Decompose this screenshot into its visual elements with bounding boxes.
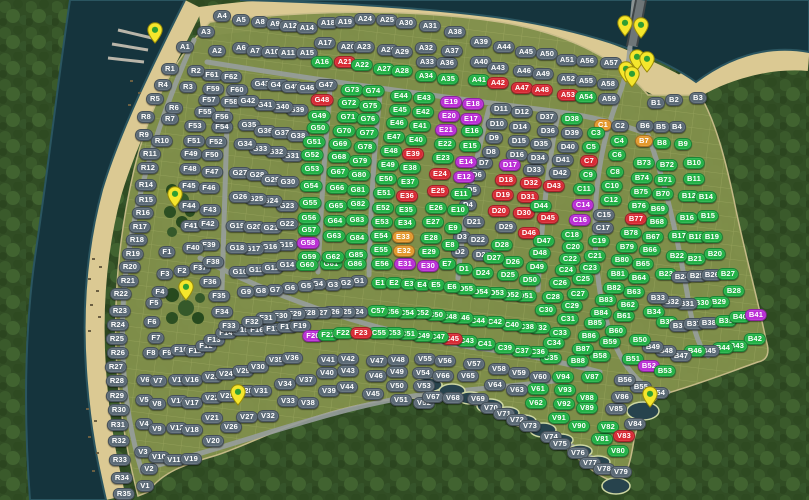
lot-label-C28[interactable]: C28: [542, 291, 564, 303]
lot-label-R21[interactable]: R21: [117, 275, 139, 287]
lot-label-A55[interactable]: A55: [575, 75, 597, 87]
lot-label-E18[interactable]: E18: [462, 98, 484, 110]
lot-label-C5[interactable]: C5: [582, 141, 600, 153]
lot-label-E20[interactable]: E20: [438, 110, 460, 122]
lot-label-C21[interactable]: C21: [584, 250, 606, 262]
lot-label-E50[interactable]: E50: [375, 173, 397, 185]
lot-label-B76[interactable]: B76: [628, 200, 650, 212]
lot-label-R7[interactable]: R7: [161, 113, 179, 125]
lot-label-A47[interactable]: A47: [511, 82, 533, 94]
lot-label-V50[interactable]: V50: [386, 380, 408, 392]
lot-label-D37[interactable]: D37: [536, 111, 558, 123]
lot-label-B60[interactable]: B60: [605, 325, 627, 337]
lot-label-C9[interactable]: C9: [579, 169, 597, 181]
lot-label-B62[interactable]: B62: [617, 299, 639, 311]
lot-label-C19[interactable]: C19: [588, 235, 610, 247]
lot-label-E26[interactable]: E26: [425, 202, 447, 214]
lot-label-R11[interactable]: R11: [139, 148, 161, 160]
lot-label-B72[interactable]: B72: [656, 159, 678, 171]
lot-label-V42[interactable]: V42: [337, 353, 359, 365]
lot-label-V63[interactable]: V63: [506, 384, 528, 396]
lot-label-A24[interactable]: A24: [354, 13, 376, 25]
lot-label-E19[interactable]: E19: [440, 96, 462, 108]
lot-label-A59[interactable]: A59: [598, 93, 620, 105]
lot-label-F35[interactable]: F35: [208, 290, 230, 302]
lot-label-G62[interactable]: G62: [322, 251, 345, 263]
lot-label-V61[interactable]: V61: [527, 383, 549, 395]
lot-label-D35[interactable]: D35: [530, 138, 552, 150]
lot-label-G55[interactable]: G55: [299, 197, 322, 209]
lot-label-A34[interactable]: A34: [415, 70, 437, 82]
lot-label-G30[interactable]: G30: [277, 176, 300, 188]
lot-label-R33[interactable]: R33: [109, 454, 131, 466]
lot-label-A42[interactable]: A42: [487, 77, 509, 89]
lot-label-B6[interactable]: B6: [636, 120, 654, 132]
lot-label-R18[interactable]: R18: [126, 234, 148, 246]
lot-label-E53[interactable]: E53: [371, 216, 393, 228]
lot-label-D25[interactable]: D25: [497, 269, 519, 281]
lot-label-V81[interactable]: V81: [591, 433, 613, 445]
lot-label-G72[interactable]: G72: [338, 97, 361, 109]
lot-label-E56[interactable]: E56: [371, 258, 393, 270]
lot-label-V55[interactable]: V55: [414, 353, 436, 365]
lot-label-F5[interactable]: F5: [145, 297, 162, 309]
lot-label-F36[interactable]: F36: [199, 276, 221, 288]
lot-label-C14[interactable]: C14: [572, 199, 594, 211]
lot-label-V17[interactable]: V17: [181, 397, 203, 409]
lot-label-R23[interactable]: R23: [109, 305, 131, 317]
lot-label-D36[interactable]: D36: [537, 125, 559, 137]
lot-label-G84[interactable]: G84: [346, 232, 369, 244]
lot-label-V58[interactable]: V58: [488, 363, 510, 375]
lot-label-F50[interactable]: F50: [201, 149, 223, 161]
lot-label-E54[interactable]: E54: [370, 230, 392, 242]
lot-label-D17[interactable]: D17: [499, 159, 521, 171]
lot-label-B50[interactable]: B50: [629, 334, 651, 346]
lot-label-E7[interactable]: E7: [438, 258, 456, 270]
lot-label-A56[interactable]: A56: [576, 55, 598, 67]
lot-label-B69[interactable]: B69: [647, 203, 669, 215]
lot-label-D27[interactable]: D27: [483, 252, 505, 264]
lot-label-A33[interactable]: A33: [416, 56, 438, 68]
lot-label-R20[interactable]: R20: [119, 261, 141, 273]
lot-label-E55[interactable]: E55: [370, 244, 392, 256]
lot-label-B61[interactable]: B61: [613, 310, 635, 322]
lot-label-B85[interactable]: B85: [584, 317, 606, 329]
lot-label-G42[interactable]: G42: [237, 95, 260, 107]
lot-label-V85[interactable]: V85: [605, 403, 627, 415]
lot-label-G70[interactable]: G70: [333, 125, 356, 137]
lot-label-V57[interactable]: V57: [463, 358, 485, 370]
lot-label-A36[interactable]: A36: [436, 57, 458, 69]
lot-label-E33[interactable]: E33: [392, 231, 414, 243]
lot-label-V31[interactable]: V31: [250, 385, 272, 397]
lot-label-G68[interactable]: G68: [328, 151, 351, 163]
lot-label-G52[interactable]: G52: [301, 149, 324, 161]
lot-label-D50[interactable]: D50: [519, 274, 541, 286]
lot-label-V92[interactable]: V92: [553, 398, 575, 410]
lot-label-B10[interactable]: B10: [683, 157, 705, 169]
lot-label-D48[interactable]: D48: [529, 247, 551, 259]
lot-label-E30[interactable]: E30: [417, 260, 439, 272]
lot-label-G69[interactable]: G69: [329, 138, 352, 150]
lot-label-D14[interactable]: D14: [509, 121, 531, 133]
lot-label-V43[interactable]: V43: [337, 365, 359, 377]
lot-label-E12[interactable]: E12: [453, 171, 475, 183]
lot-label-G74[interactable]: G74: [362, 85, 385, 97]
lot-label-V1[interactable]: V1: [136, 480, 154, 492]
lot-label-G65[interactable]: G65: [325, 200, 348, 212]
lot-label-D41[interactable]: D41: [552, 154, 574, 166]
lot-label-G66[interactable]: G66: [326, 182, 349, 194]
lot-label-V9[interactable]: V9: [148, 423, 166, 435]
lot-label-R3[interactable]: R3: [179, 81, 197, 93]
lot-label-D21[interactable]: D21: [463, 216, 485, 228]
lot-label-C3[interactable]: C3: [587, 127, 605, 139]
lot-label-B75[interactable]: B75: [630, 186, 652, 198]
lot-label-B65[interactable]: B65: [632, 258, 654, 270]
lot-label-B15[interactable]: B15: [697, 210, 719, 222]
lot-label-D47[interactable]: D47: [533, 235, 555, 247]
lot-label-D42[interactable]: D42: [549, 167, 571, 179]
lot-label-F57[interactable]: F57: [198, 94, 220, 106]
lot-label-A39[interactable]: A39: [470, 36, 492, 48]
lot-label-B79[interactable]: B79: [616, 241, 638, 253]
lot-label-B2[interactable]: B2: [665, 94, 683, 106]
lot-label-V64[interactable]: V64: [484, 379, 506, 391]
lot-label-V48[interactable]: V48: [387, 354, 409, 366]
lot-label-B78[interactable]: B78: [620, 227, 642, 239]
lot-label-D12[interactable]: D12: [511, 106, 533, 118]
lot-label-G81[interactable]: G81: [347, 184, 370, 196]
lot-label-D39[interactable]: D39: [561, 127, 583, 139]
lot-label-G63[interactable]: G63: [323, 230, 346, 242]
lot-label-E14[interactable]: E14: [455, 156, 477, 168]
lot-label-F52[interactable]: F52: [205, 136, 227, 148]
lot-label-B41[interactable]: B41: [745, 309, 767, 321]
lot-label-B22[interactable]: B22: [666, 250, 688, 262]
lot-label-D34[interactable]: D34: [527, 152, 549, 164]
lot-label-D9[interactable]: D9: [485, 132, 503, 144]
lot-label-E51[interactable]: E51: [373, 187, 395, 199]
map-pin-3[interactable]: [633, 17, 649, 39]
lot-label-E32[interactable]: E32: [393, 245, 415, 257]
lot-label-V18[interactable]: V18: [181, 424, 203, 436]
lot-label-V21[interactable]: V21: [201, 412, 223, 424]
lot-label-A38[interactable]: A38: [444, 26, 466, 38]
lot-label-V54[interactable]: V54: [412, 367, 434, 379]
lot-label-E25[interactable]: E25: [427, 185, 449, 197]
lot-label-E39[interactable]: E39: [402, 148, 424, 160]
lot-label-E42[interactable]: E42: [412, 106, 434, 118]
lot-label-D19[interactable]: D19: [492, 189, 514, 201]
lot-label-B16[interactable]: B16: [676, 212, 698, 224]
lot-label-R25[interactable]: R25: [106, 333, 128, 345]
lot-label-F62[interactable]: F62: [220, 71, 242, 83]
lot-label-B8[interactable]: B8: [653, 137, 671, 149]
lot-label-B77[interactable]: B77: [625, 213, 647, 225]
lot-label-F32[interactable]: F32: [241, 316, 263, 328]
lot-label-D38[interactable]: D38: [561, 113, 583, 125]
lot-label-G57[interactable]: G57: [298, 224, 321, 236]
lot-label-F38[interactable]: F38: [202, 256, 224, 268]
lot-label-B33[interactable]: B33: [647, 292, 669, 304]
lot-label-B86[interactable]: B86: [578, 330, 600, 342]
lot-label-R2[interactable]: R2: [187, 65, 205, 77]
lot-label-D8[interactable]: D8: [482, 146, 500, 158]
lot-label-F40[interactable]: F40: [182, 242, 204, 254]
lot-label-G86[interactable]: G86: [344, 258, 367, 270]
lot-label-B83[interactable]: B83: [595, 294, 617, 306]
lot-label-B68[interactable]: B68: [646, 216, 668, 228]
lot-label-R34[interactable]: R34: [111, 472, 133, 484]
lot-label-G58[interactable]: G58: [297, 237, 320, 249]
lot-label-R16[interactable]: R16: [132, 207, 154, 219]
lot-label-E27[interactable]: E27: [422, 216, 444, 228]
lot-label-C6[interactable]: C6: [608, 149, 626, 161]
lot-label-F46[interactable]: F46: [198, 182, 220, 194]
lot-label-A50[interactable]: A50: [536, 48, 558, 60]
lot-label-E28[interactable]: E28: [420, 232, 442, 244]
lot-label-G77[interactable]: G77: [356, 127, 379, 139]
lot-label-A31[interactable]: A31: [419, 20, 441, 32]
lot-label-B71[interactable]: B71: [654, 174, 676, 186]
lot-label-E23[interactable]: E23: [432, 152, 454, 164]
lot-label-D28[interactable]: D28: [491, 239, 513, 251]
lot-label-A45[interactable]: A45: [515, 46, 537, 58]
lot-label-V68[interactable]: V68: [442, 392, 464, 404]
lot-label-F53[interactable]: F53: [184, 120, 206, 132]
lot-label-F34[interactable]: F34: [211, 306, 233, 318]
lot-label-B70[interactable]: B70: [652, 188, 674, 200]
lot-label-V51[interactable]: V51: [390, 394, 412, 406]
lot-label-A1[interactable]: A1: [176, 41, 194, 53]
lot-label-E21[interactable]: E21: [435, 124, 457, 136]
lot-label-B88[interactable]: B88: [567, 355, 589, 367]
lot-label-V44[interactable]: V44: [336, 381, 358, 393]
lot-label-R24[interactable]: R24: [107, 319, 129, 331]
lot-label-D22[interactable]: D22: [467, 234, 489, 246]
lot-label-C15[interactable]: C15: [593, 209, 615, 221]
lot-label-E15[interactable]: E15: [459, 140, 481, 152]
lot-label-V56[interactable]: V56: [434, 355, 456, 367]
lot-label-V79[interactable]: V79: [610, 466, 632, 478]
lot-label-C11[interactable]: C11: [573, 183, 595, 195]
lot-label-G82[interactable]: G82: [347, 198, 370, 210]
lot-label-G34[interactable]: G34: [234, 138, 257, 150]
lot-label-D10[interactable]: D10: [486, 118, 508, 130]
lot-label-D29[interactable]: D29: [495, 221, 517, 233]
lot-label-V66[interactable]: V66: [432, 370, 454, 382]
lot-label-V8[interactable]: V8: [148, 398, 166, 410]
lot-label-R19[interactable]: R19: [122, 248, 144, 260]
lot-label-F8[interactable]: F8: [142, 347, 159, 359]
lot-label-A48[interactable]: A48: [531, 84, 553, 96]
lot-label-G22[interactable]: G22: [276, 218, 299, 230]
map-pin-7[interactable]: [624, 66, 640, 88]
lot-label-V86[interactable]: V86: [611, 391, 633, 403]
lot-label-G18[interactable]: G18: [226, 242, 249, 254]
lot-label-B66[interactable]: B66: [639, 244, 661, 256]
lot-label-V65[interactable]: V65: [457, 370, 479, 382]
lot-label-C39[interactable]: C39: [494, 342, 516, 354]
lot-label-E35[interactable]: E35: [395, 204, 417, 216]
lot-label-V59[interactable]: V59: [508, 367, 530, 379]
map-pin-5[interactable]: [639, 51, 655, 73]
lot-label-G54[interactable]: G54: [300, 180, 323, 192]
lot-label-B9[interactable]: B9: [674, 138, 692, 150]
lot-label-G53[interactable]: G53: [301, 163, 324, 175]
lot-label-A51[interactable]: A51: [556, 54, 578, 66]
lot-label-D7[interactable]: D7: [475, 157, 493, 169]
lot-label-A3[interactable]: A3: [197, 26, 215, 38]
lot-label-F47[interactable]: F47: [201, 166, 223, 178]
lot-label-B64[interactable]: B64: [628, 272, 650, 284]
lot-label-D44[interactable]: D44: [530, 200, 552, 212]
lot-label-C12[interactable]: C12: [600, 194, 622, 206]
lot-label-V94[interactable]: V94: [552, 371, 574, 383]
lot-label-R27[interactable]: R27: [105, 361, 127, 373]
lot-label-E9[interactable]: E9: [444, 222, 462, 234]
lot-label-V41[interactable]: V41: [317, 354, 339, 366]
lot-label-F6[interactable]: F6: [143, 316, 160, 328]
lot-label-F33[interactable]: F33: [218, 320, 240, 332]
lot-label-G64[interactable]: G64: [324, 215, 347, 227]
lot-label-V32[interactable]: V32: [257, 410, 279, 422]
lot-label-B7[interactable]: B7: [635, 135, 653, 147]
lot-label-G49[interactable]: G49: [308, 110, 331, 122]
lot-label-E11[interactable]: E11: [450, 188, 472, 200]
lot-label-B20[interactable]: B20: [704, 248, 726, 260]
lot-label-E48[interactable]: E48: [380, 145, 402, 157]
lot-label-V20[interactable]: V20: [202, 435, 224, 447]
lot-label-D43[interactable]: D43: [543, 180, 565, 192]
lot-label-G51[interactable]: G51: [303, 136, 326, 148]
lot-label-E29[interactable]: E29: [418, 246, 440, 258]
lot-label-G80[interactable]: G80: [348, 169, 371, 181]
lot-label-V7[interactable]: V7: [149, 375, 167, 387]
lot-label-E37[interactable]: E37: [397, 176, 419, 188]
lot-label-A2[interactable]: A2: [208, 45, 226, 57]
lot-label-G48[interactable]: G48: [311, 94, 334, 106]
lot-label-V84[interactable]: V84: [624, 418, 646, 430]
lot-label-E38[interactable]: E38: [399, 162, 421, 174]
lot-label-V47[interactable]: V47: [366, 355, 388, 367]
lot-label-V90[interactable]: V90: [568, 420, 590, 432]
lot-label-C26[interactable]: C26: [549, 277, 571, 289]
lot-label-V36[interactable]: V36: [281, 352, 303, 364]
lot-label-C10[interactable]: C10: [601, 180, 623, 192]
lot-label-D18[interactable]: D18: [495, 174, 517, 186]
lot-label-D45[interactable]: D45: [537, 212, 559, 224]
lot-label-A14[interactable]: A14: [296, 22, 318, 34]
lot-label-E49[interactable]: E49: [377, 159, 399, 171]
lot-label-B87[interactable]: B87: [572, 343, 594, 355]
lot-label-G5[interactable]: G5: [297, 280, 315, 292]
lot-label-C7[interactable]: C7: [580, 155, 598, 167]
lot-label-R28[interactable]: R28: [106, 375, 128, 387]
lot-label-D40[interactable]: D40: [557, 141, 579, 153]
lot-label-V26[interactable]: V26: [220, 421, 242, 433]
lot-label-R30[interactable]: R30: [108, 404, 130, 416]
lot-label-V49[interactable]: V49: [386, 366, 408, 378]
lot-label-R31[interactable]: R31: [107, 419, 129, 431]
lot-label-F48[interactable]: F48: [179, 163, 201, 175]
lot-label-E16[interactable]: E16: [461, 125, 483, 137]
lot-label-V67[interactable]: V67: [422, 391, 444, 403]
lot-label-V34[interactable]: V34: [274, 378, 296, 390]
lot-label-E22[interactable]: E22: [434, 138, 456, 150]
lot-label-B63[interactable]: B63: [623, 286, 645, 298]
lot-label-V89[interactable]: V89: [576, 402, 598, 414]
map-pin-8[interactable]: [167, 186, 183, 208]
lot-label-R32[interactable]: R32: [108, 435, 130, 447]
lot-label-B28[interactable]: B28: [723, 285, 745, 297]
lot-label-A54[interactable]: A54: [575, 91, 597, 103]
lot-label-E43[interactable]: E43: [413, 92, 435, 104]
lot-label-D15[interactable]: D15: [508, 135, 530, 147]
lot-label-G83[interactable]: G83: [346, 214, 369, 226]
lot-label-G75[interactable]: G75: [359, 100, 382, 112]
lot-label-E36[interactable]: E36: [396, 190, 418, 202]
lot-label-F49[interactable]: F49: [180, 148, 202, 160]
map-pin-2[interactable]: [617, 15, 633, 37]
lot-label-E10[interactable]: E10: [447, 204, 469, 216]
lot-label-C8[interactable]: C8: [606, 166, 624, 178]
lot-label-F42[interactable]: F42: [197, 218, 219, 230]
lot-label-V87[interactable]: V87: [581, 371, 603, 383]
lot-label-F1[interactable]: F1: [158, 246, 175, 258]
lot-label-G26[interactable]: G26: [229, 191, 252, 203]
lot-label-F23[interactable]: F23: [350, 327, 372, 339]
lot-label-R35[interactable]: R35: [113, 488, 135, 500]
lot-label-B5[interactable]: B5: [652, 121, 670, 133]
lot-label-E24[interactable]: E24: [429, 168, 451, 180]
lot-label-C31[interactable]: C31: [557, 313, 579, 325]
lot-label-D33[interactable]: D33: [523, 164, 545, 176]
lot-label-E40[interactable]: E40: [405, 134, 427, 146]
lot-label-B56[interactable]: B56: [614, 374, 636, 386]
lot-label-B4[interactable]: B4: [668, 121, 686, 133]
lot-label-B59[interactable]: B59: [599, 336, 621, 348]
lot-label-V83[interactable]: V83: [613, 430, 635, 442]
lot-label-C17[interactable]: C17: [592, 222, 614, 234]
lot-label-F59[interactable]: F59: [202, 83, 224, 95]
lot-label-C57[interactable]: C57: [367, 305, 389, 317]
lot-label-A17[interactable]: A17: [314, 37, 336, 49]
lot-label-B27[interactable]: B27: [717, 268, 739, 280]
lot-label-A32[interactable]: A32: [415, 42, 437, 54]
lot-label-V60[interactable]: V60: [529, 371, 551, 383]
lot-label-F56[interactable]: F56: [211, 111, 233, 123]
lot-label-B82[interactable]: B82: [603, 282, 625, 294]
lot-label-E45[interactable]: E45: [389, 104, 411, 116]
lot-label-V91[interactable]: V91: [548, 412, 570, 424]
lot-label-C30[interactable]: C30: [535, 304, 557, 316]
lot-label-G67[interactable]: G67: [327, 166, 350, 178]
lot-label-B67[interactable]: B67: [642, 231, 664, 243]
lot-label-R22[interactable]: R22: [110, 288, 132, 300]
lot-label-G56[interactable]: G56: [298, 212, 321, 224]
lot-label-V80[interactable]: V80: [607, 445, 629, 457]
lot-label-D32[interactable]: D32: [520, 177, 542, 189]
lot-label-C27[interactable]: C27: [567, 288, 589, 300]
lot-label-B80[interactable]: B80: [611, 254, 633, 266]
lot-label-C2[interactable]: C2: [611, 120, 629, 132]
lot-label-E34[interactable]: E34: [394, 217, 416, 229]
lot-label-G50[interactable]: G50: [307, 122, 330, 134]
lot-label-F3[interactable]: F3: [156, 268, 173, 280]
